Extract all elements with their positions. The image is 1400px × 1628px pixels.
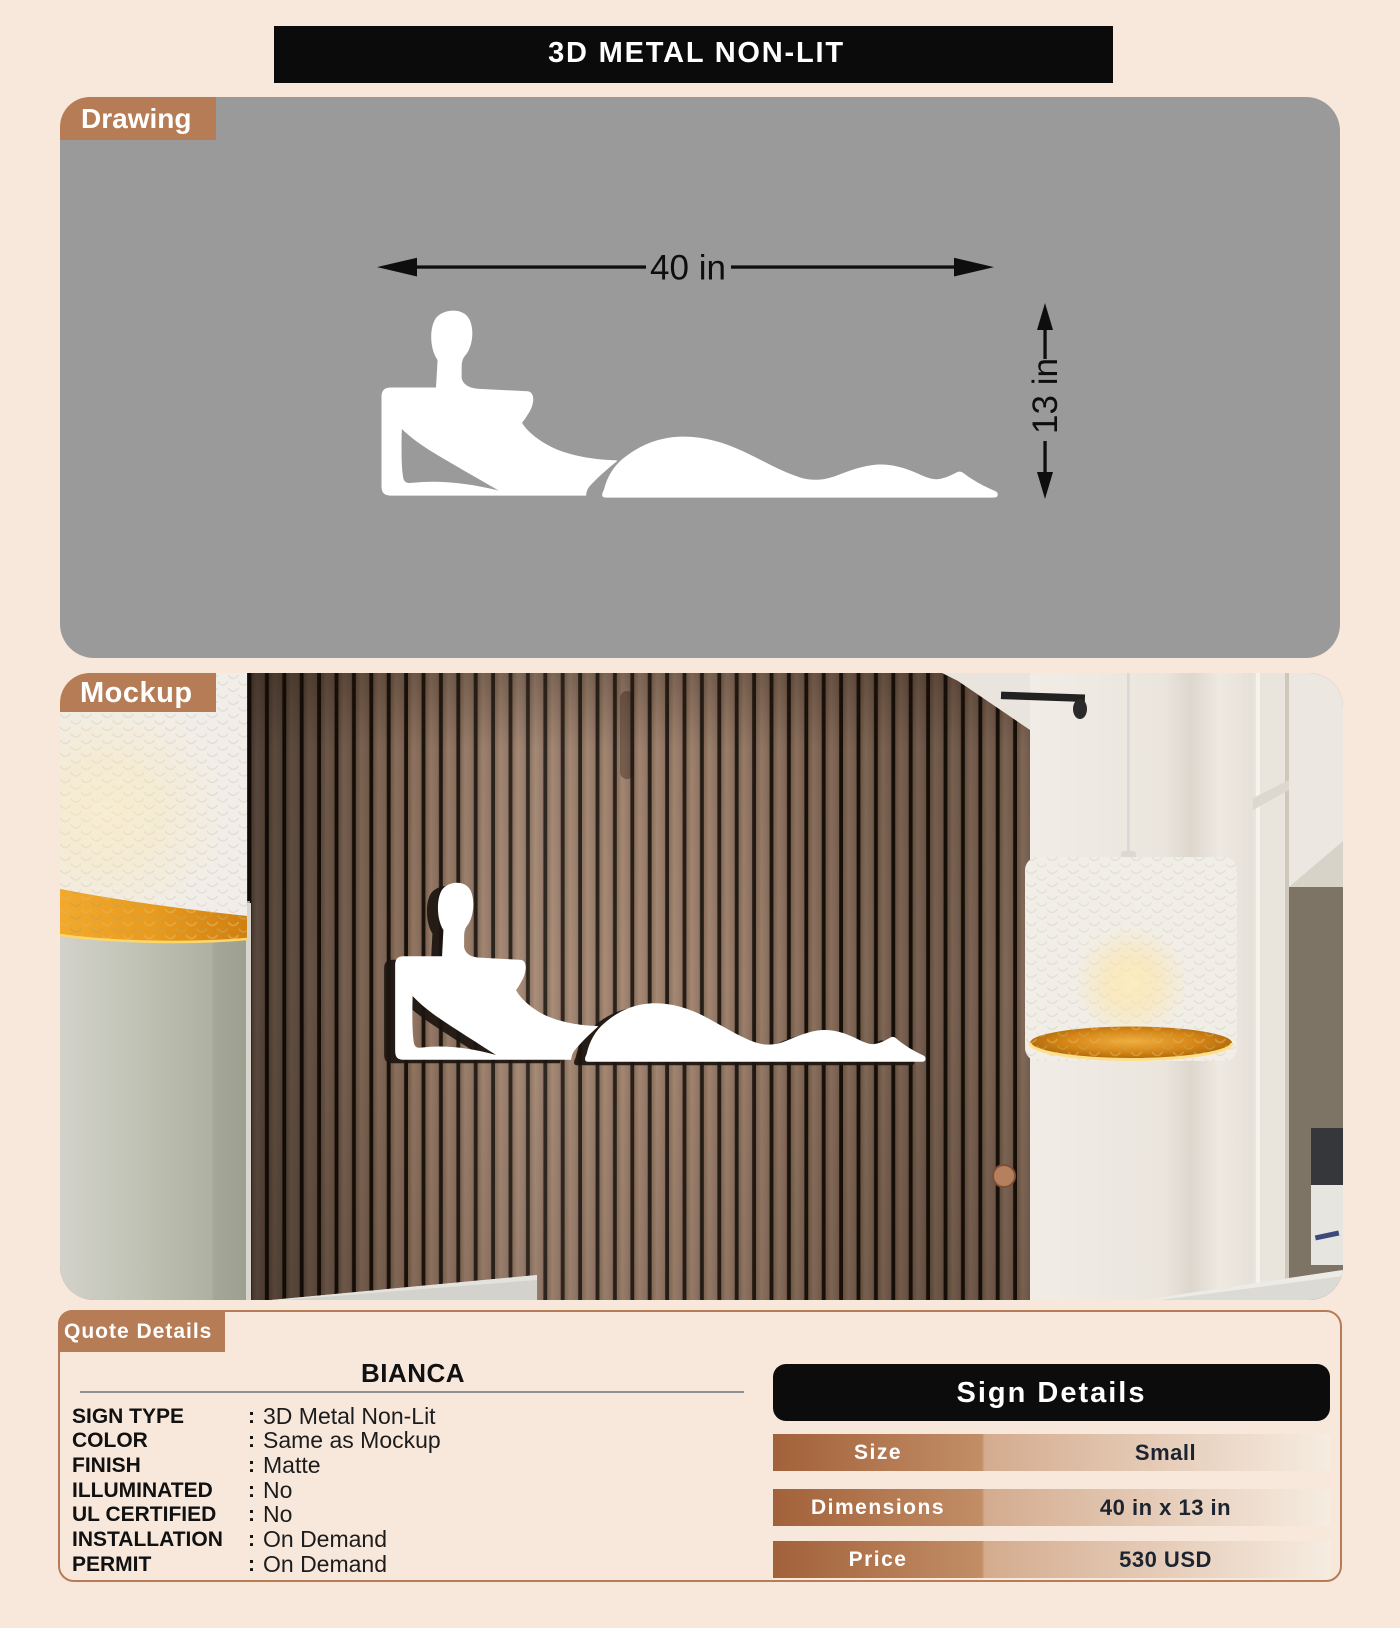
svg-text:40 in: 40 in: [650, 249, 726, 288]
svg-text:13 in: 13 in: [1026, 358, 1065, 434]
